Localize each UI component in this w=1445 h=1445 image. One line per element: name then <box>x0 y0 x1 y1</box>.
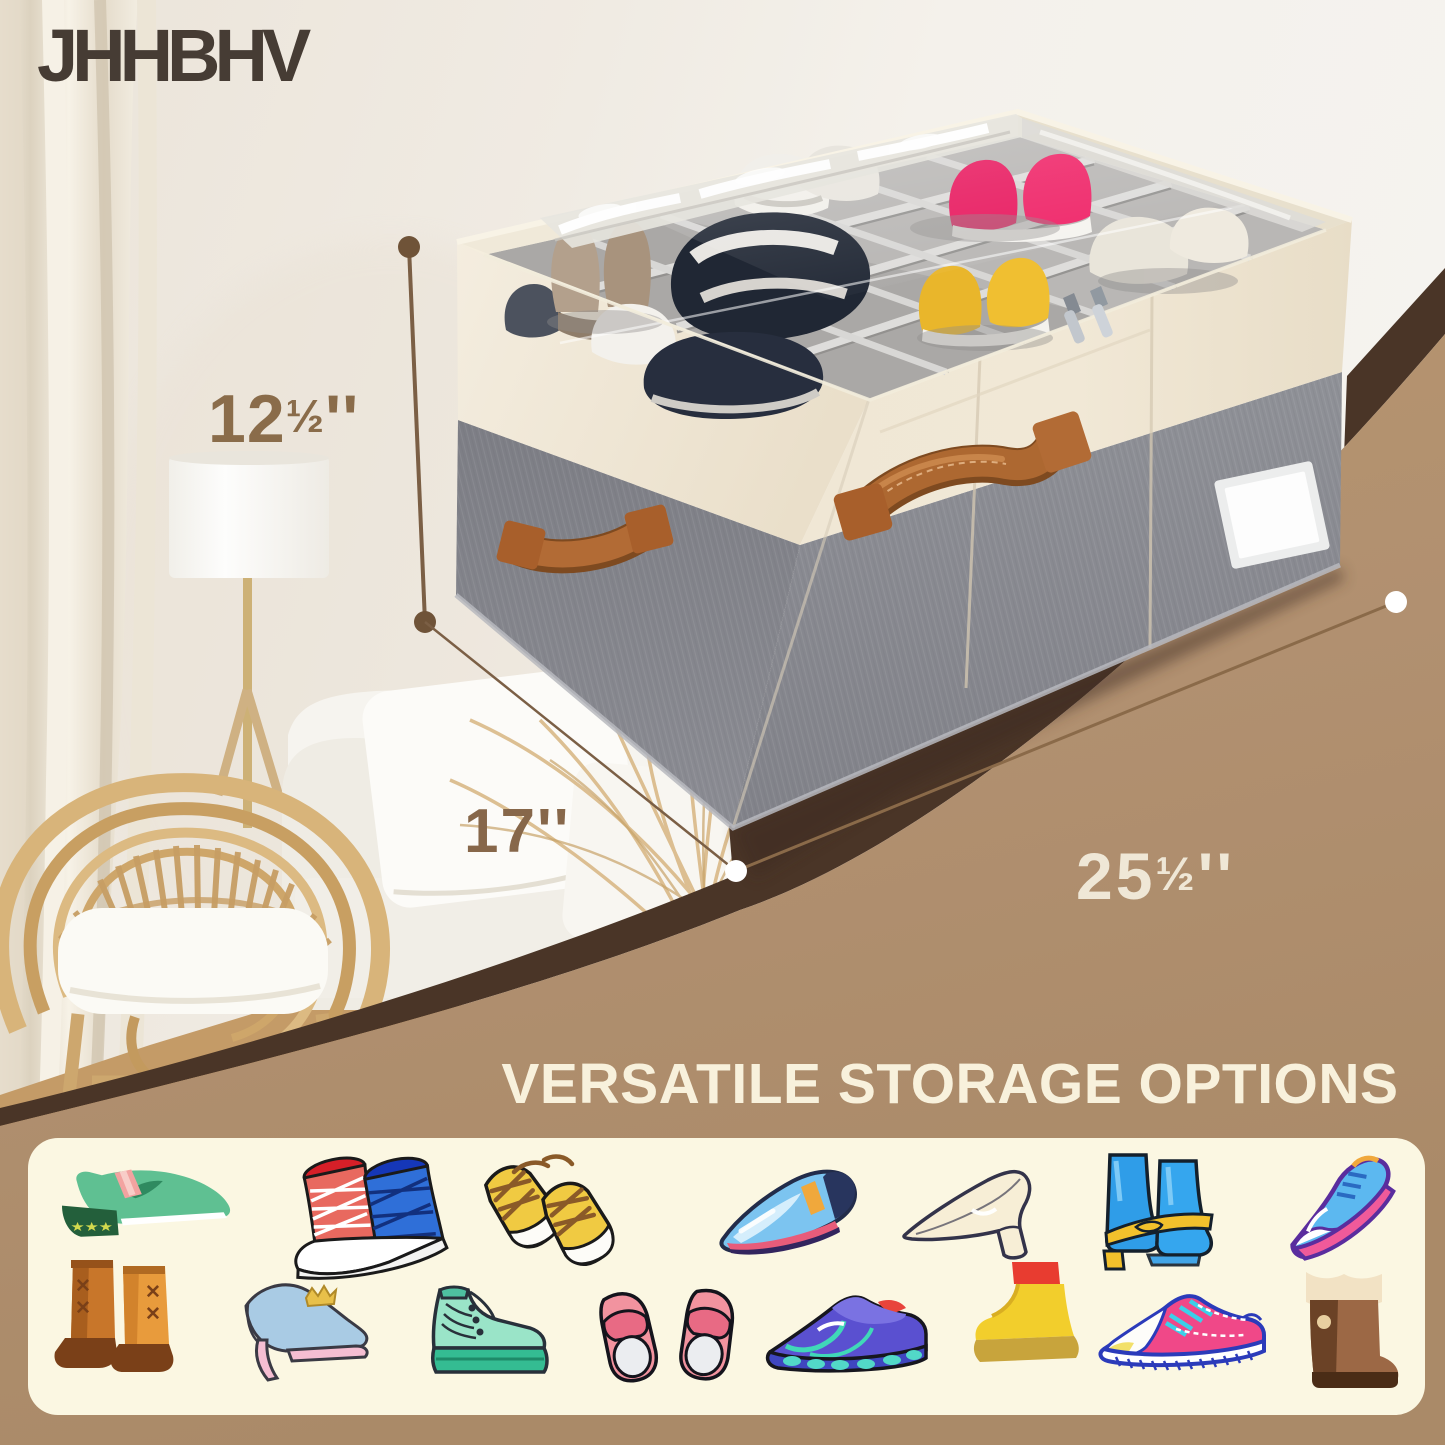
svg-text:12½'': 12½'' <box>208 381 359 457</box>
svg-text:JHHBHV: JHHBHV <box>37 14 311 97</box>
svg-text:✕: ✕ <box>145 1282 161 1303</box>
svg-text:17'': 17'' <box>464 797 570 866</box>
svg-text:✕: ✕ <box>145 1304 161 1325</box>
svg-text:✕: ✕ <box>75 1298 91 1319</box>
svg-text:✕: ✕ <box>75 1276 91 1297</box>
svg-text:★★★: ★★★ <box>70 1220 112 1234</box>
svg-text:VERSATILE STORAGE OPTIONS: VERSATILE STORAGE OPTIONS <box>501 1052 1398 1116</box>
